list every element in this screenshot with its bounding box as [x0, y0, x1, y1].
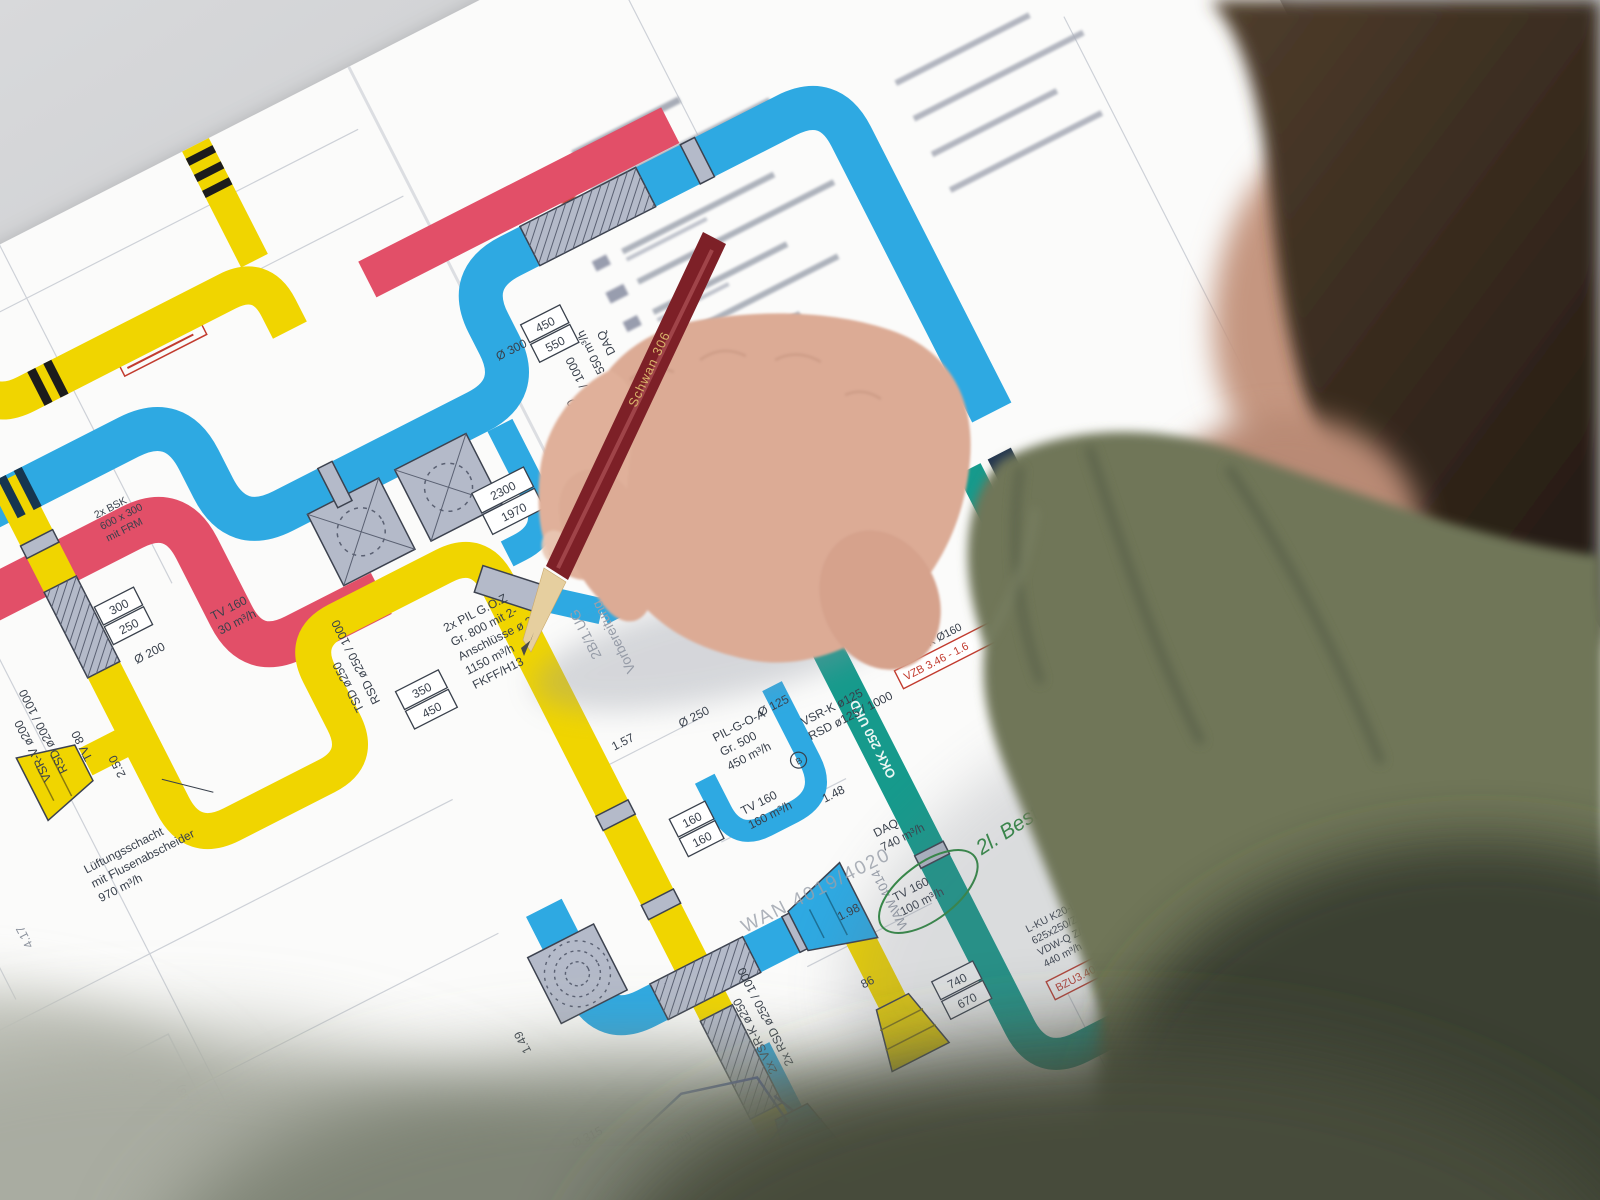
photo-scene: OKK 250 UKD OKK 250 UKD OKK 250 UKD 350 … [0, 0, 1600, 1200]
photo-canvas: OKK 250 UKD OKK 250 UKD OKK 250 UKD 350 … [0, 0, 1600, 1200]
